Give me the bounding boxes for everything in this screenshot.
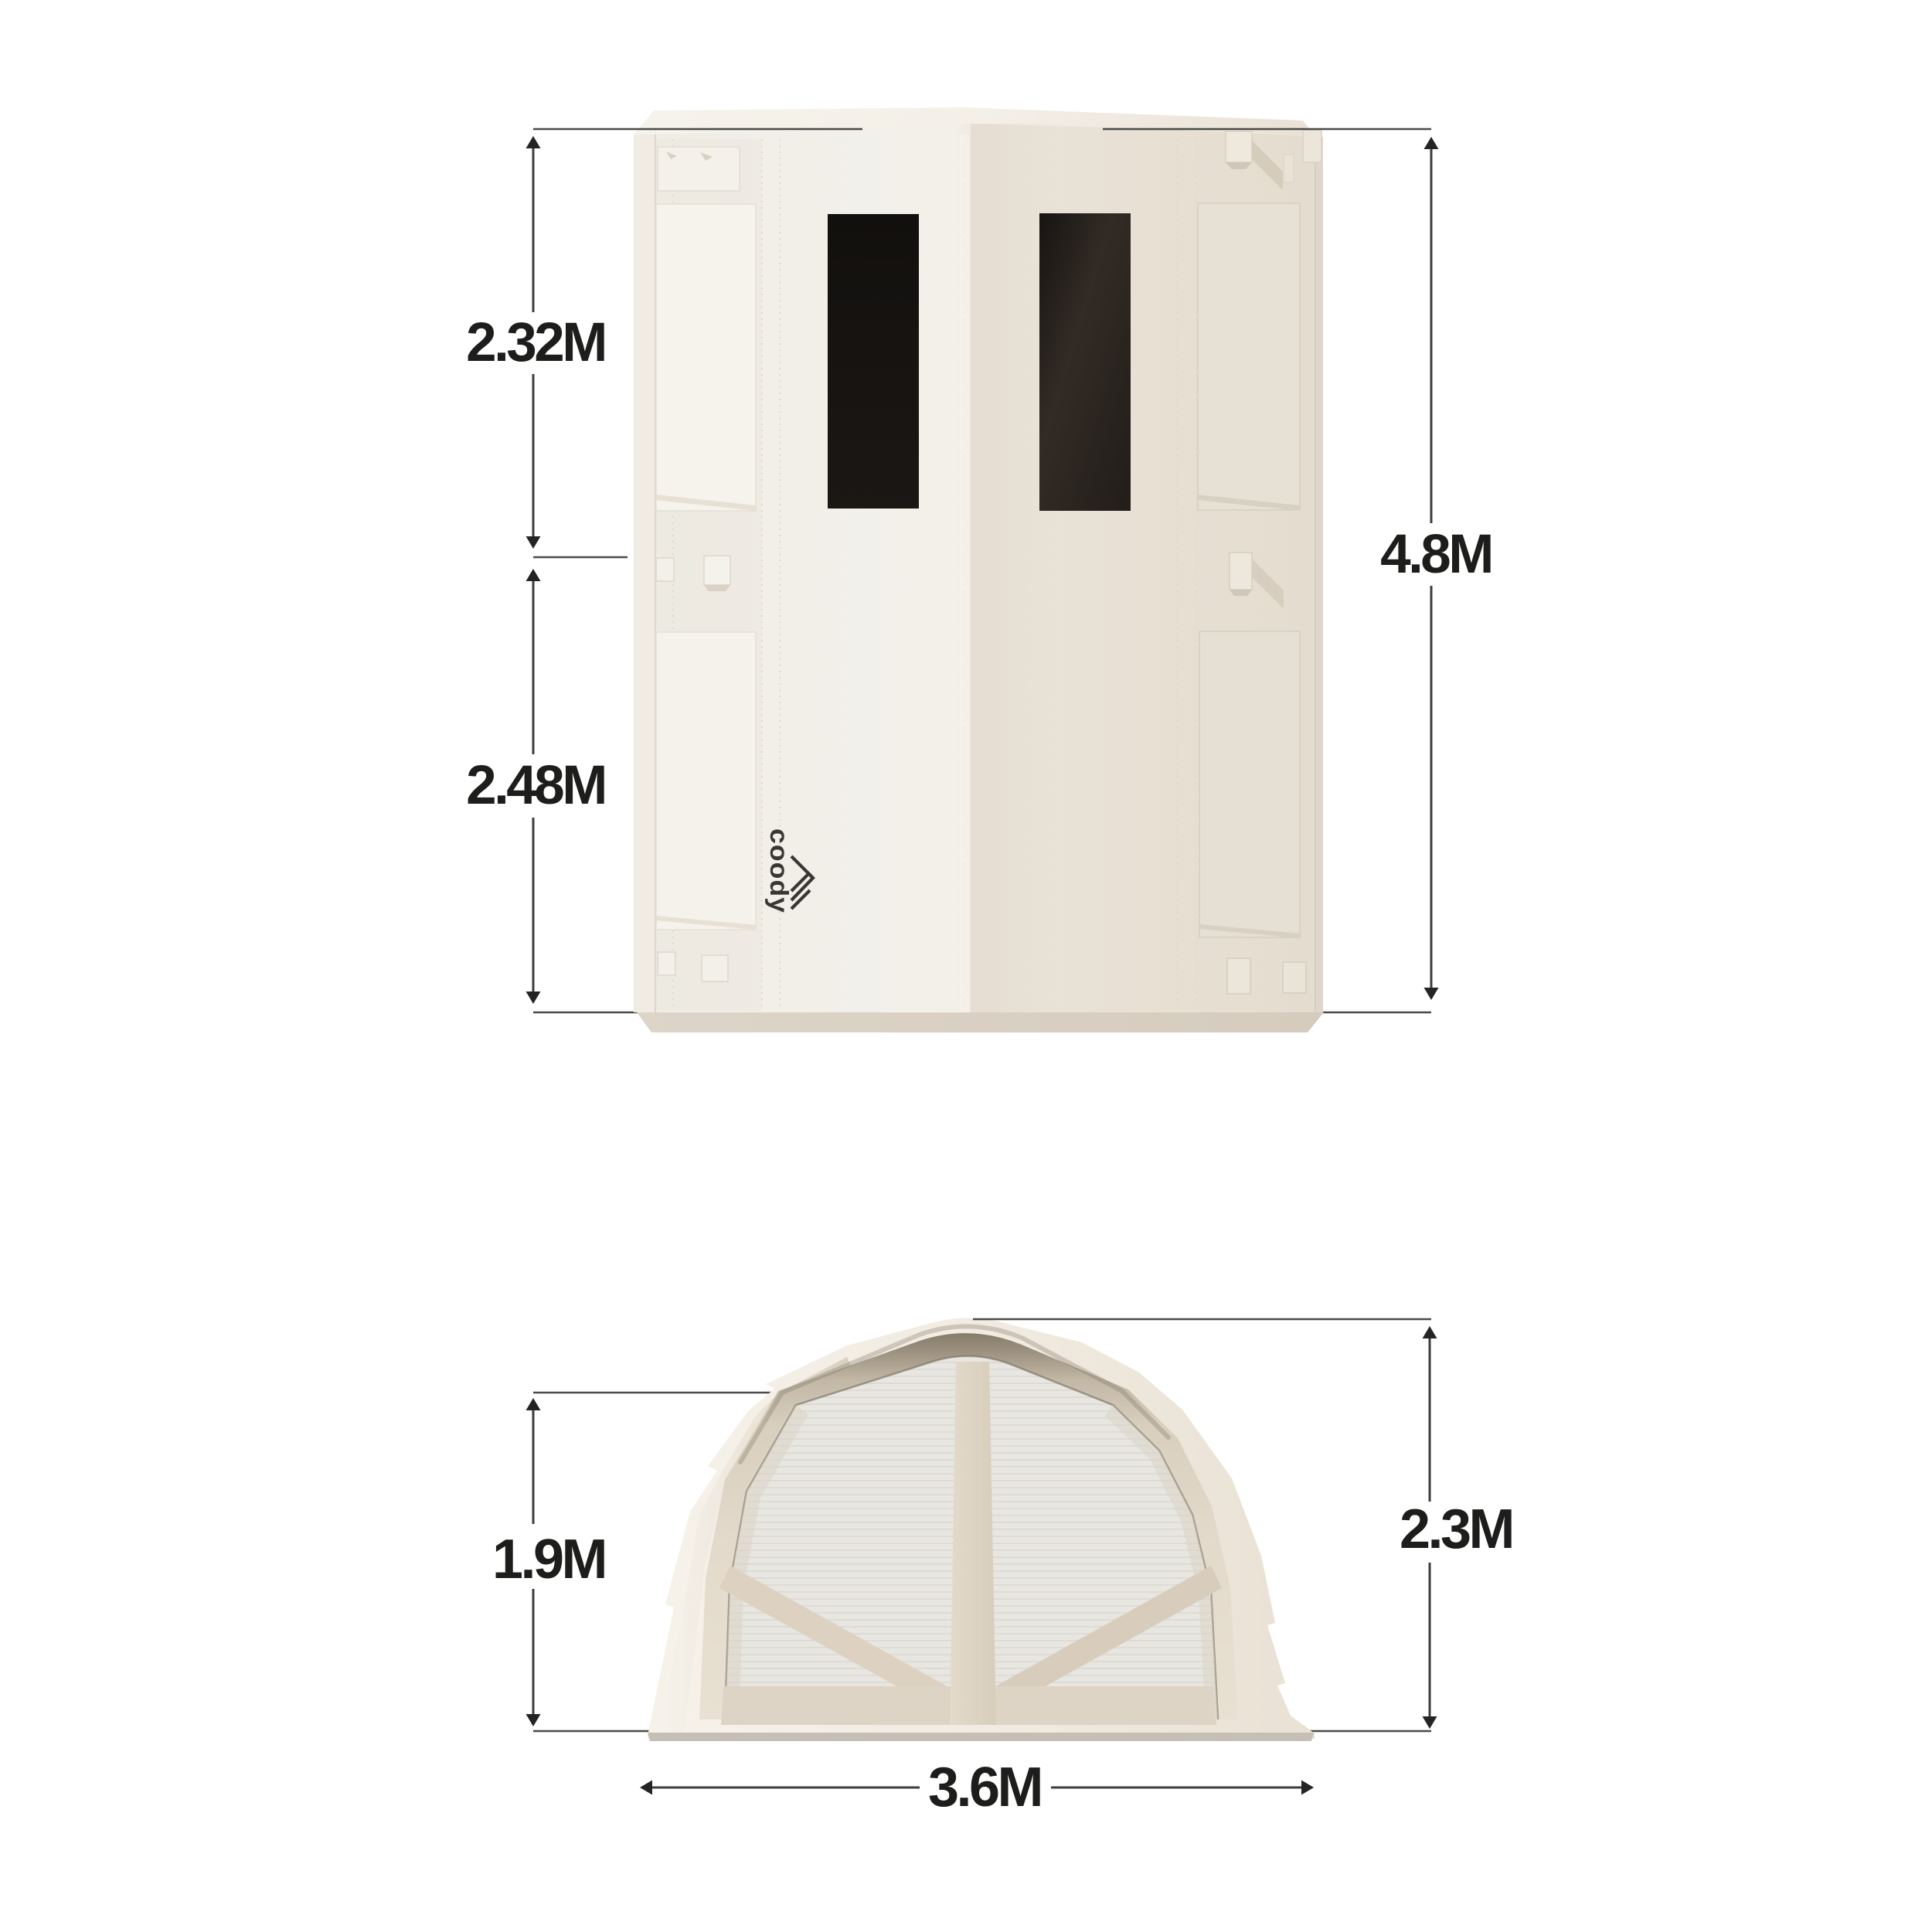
svg-text:2.48M: 2.48M — [466, 755, 605, 816]
svg-text:1.9M: 1.9M — [492, 1529, 605, 1590]
svg-text:2.32M: 2.32M — [466, 312, 605, 373]
svg-text:3.6M: 3.6M — [928, 1757, 1041, 1818]
svg-text:2.3M: 2.3M — [1400, 1498, 1512, 1560]
svg-text:4.8M: 4.8M — [1380, 524, 1492, 585]
svg-text:coody: coody — [765, 828, 794, 913]
